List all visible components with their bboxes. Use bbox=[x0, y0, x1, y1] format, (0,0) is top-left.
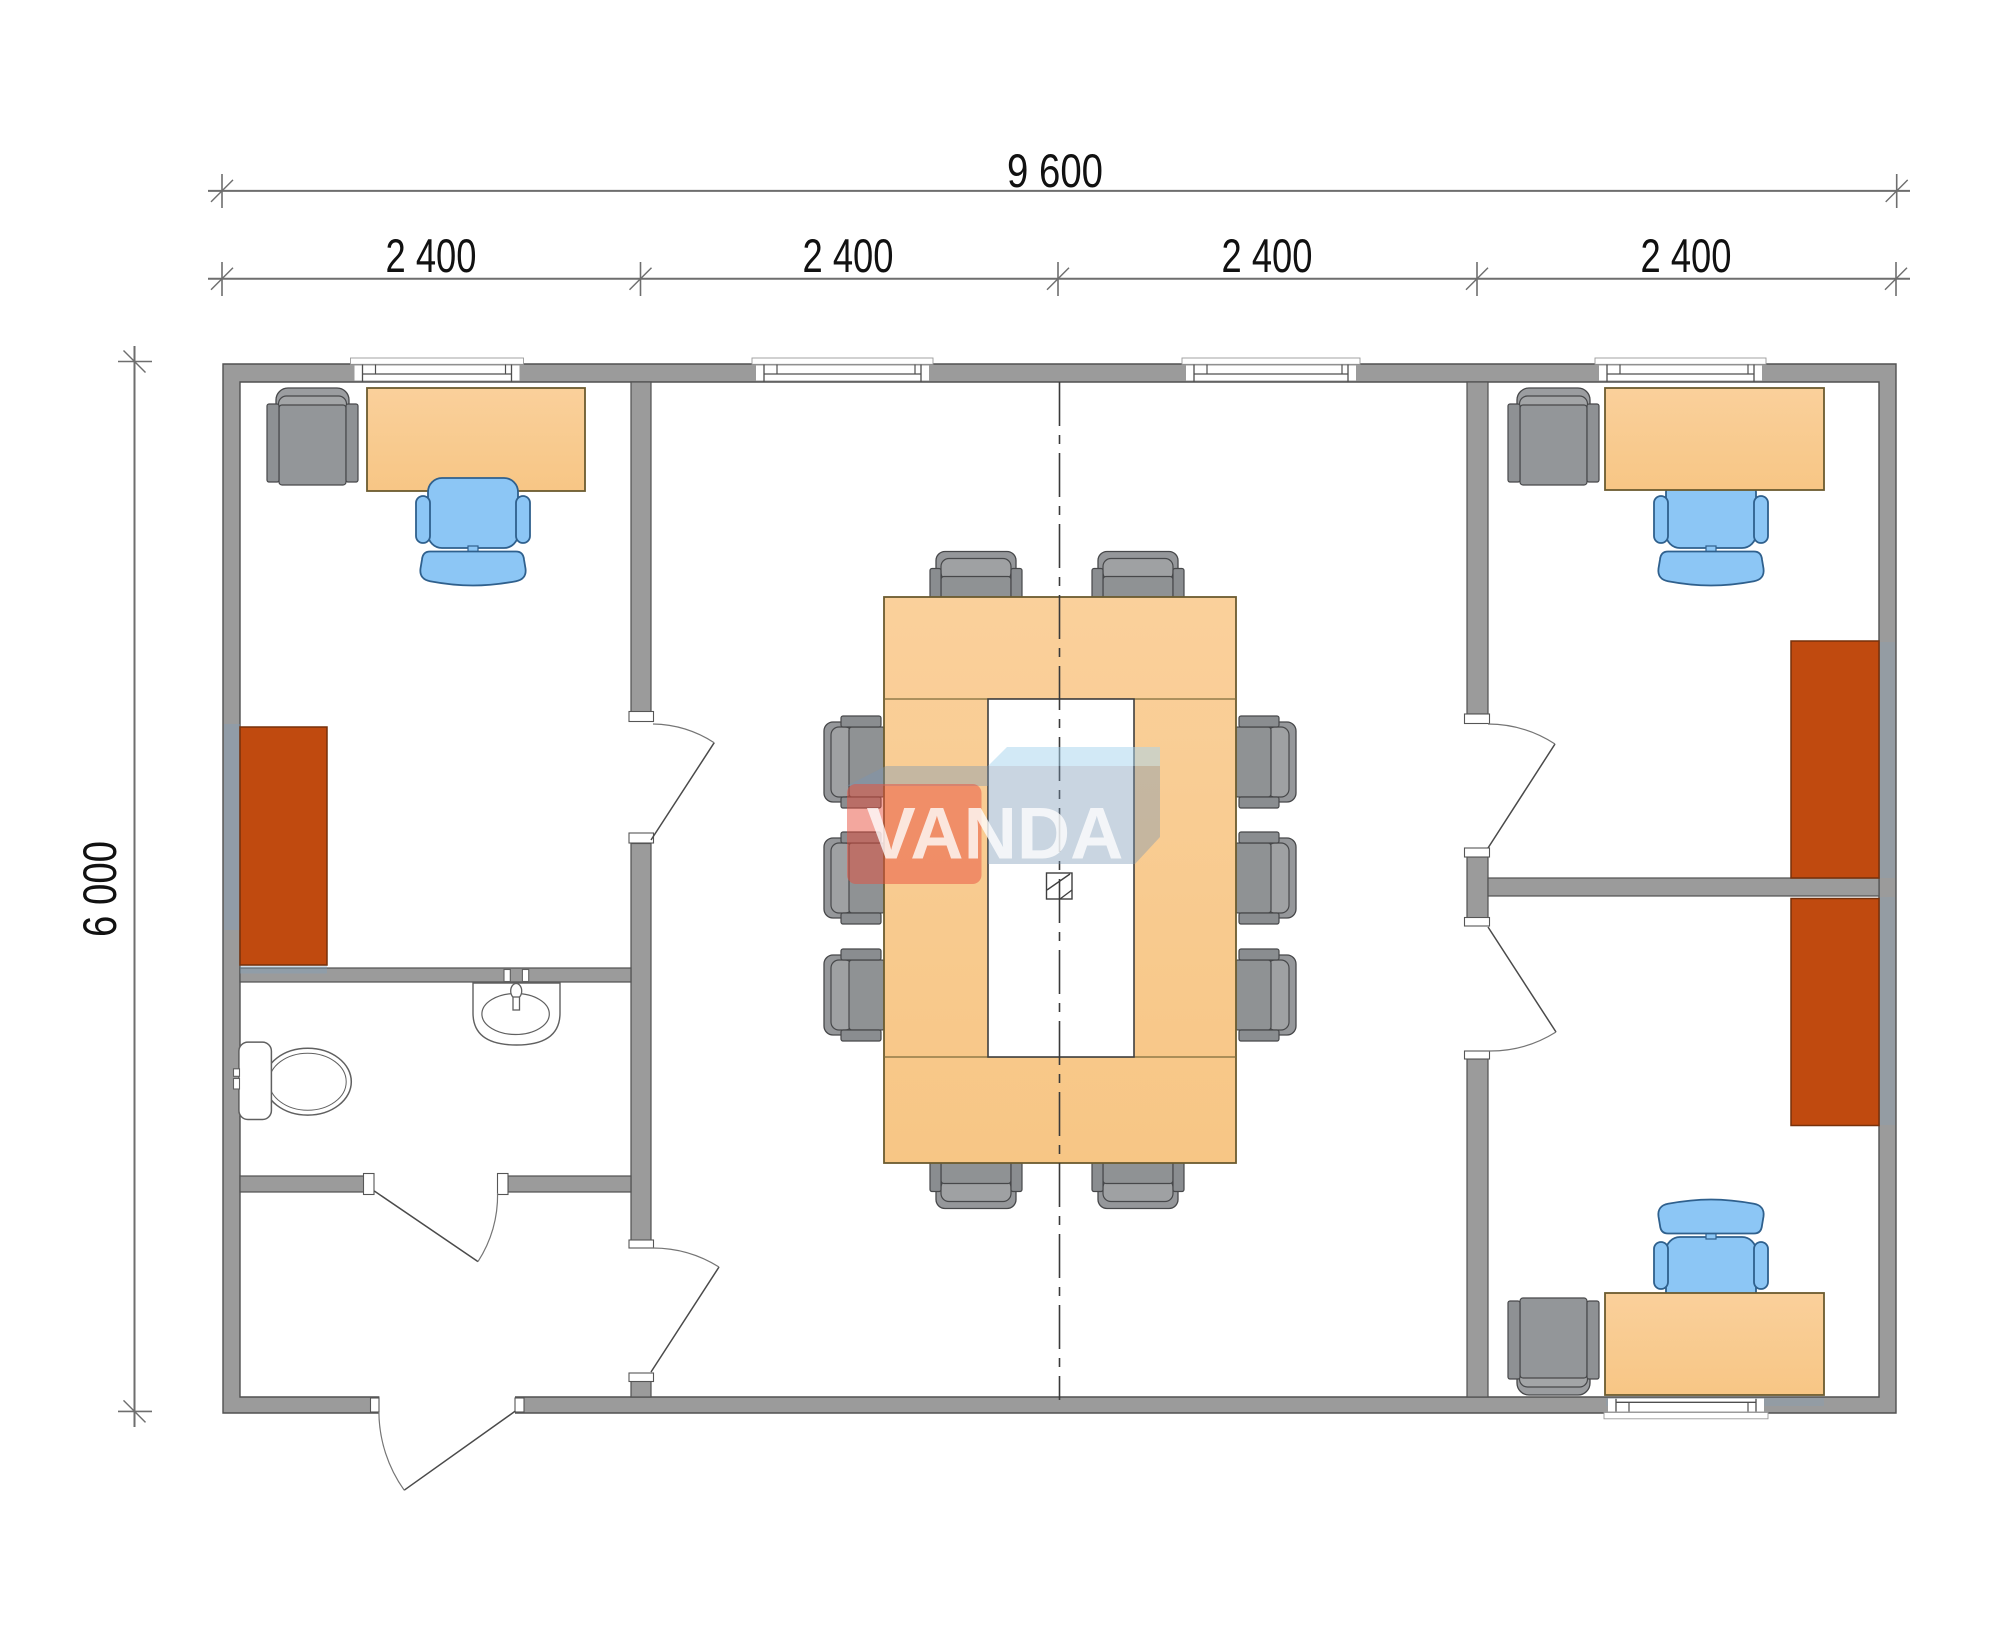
svg-text:2 400: 2 400 bbox=[1641, 229, 1732, 282]
svg-text:9 600: 9 600 bbox=[1007, 144, 1103, 197]
svg-text:2 400: 2 400 bbox=[386, 229, 477, 282]
svg-text:2 400: 2 400 bbox=[803, 229, 894, 282]
svg-text:VANDA: VANDA bbox=[867, 794, 1124, 875]
svg-text:6 000: 6 000 bbox=[73, 841, 126, 937]
svg-text:2 400: 2 400 bbox=[1222, 229, 1313, 282]
